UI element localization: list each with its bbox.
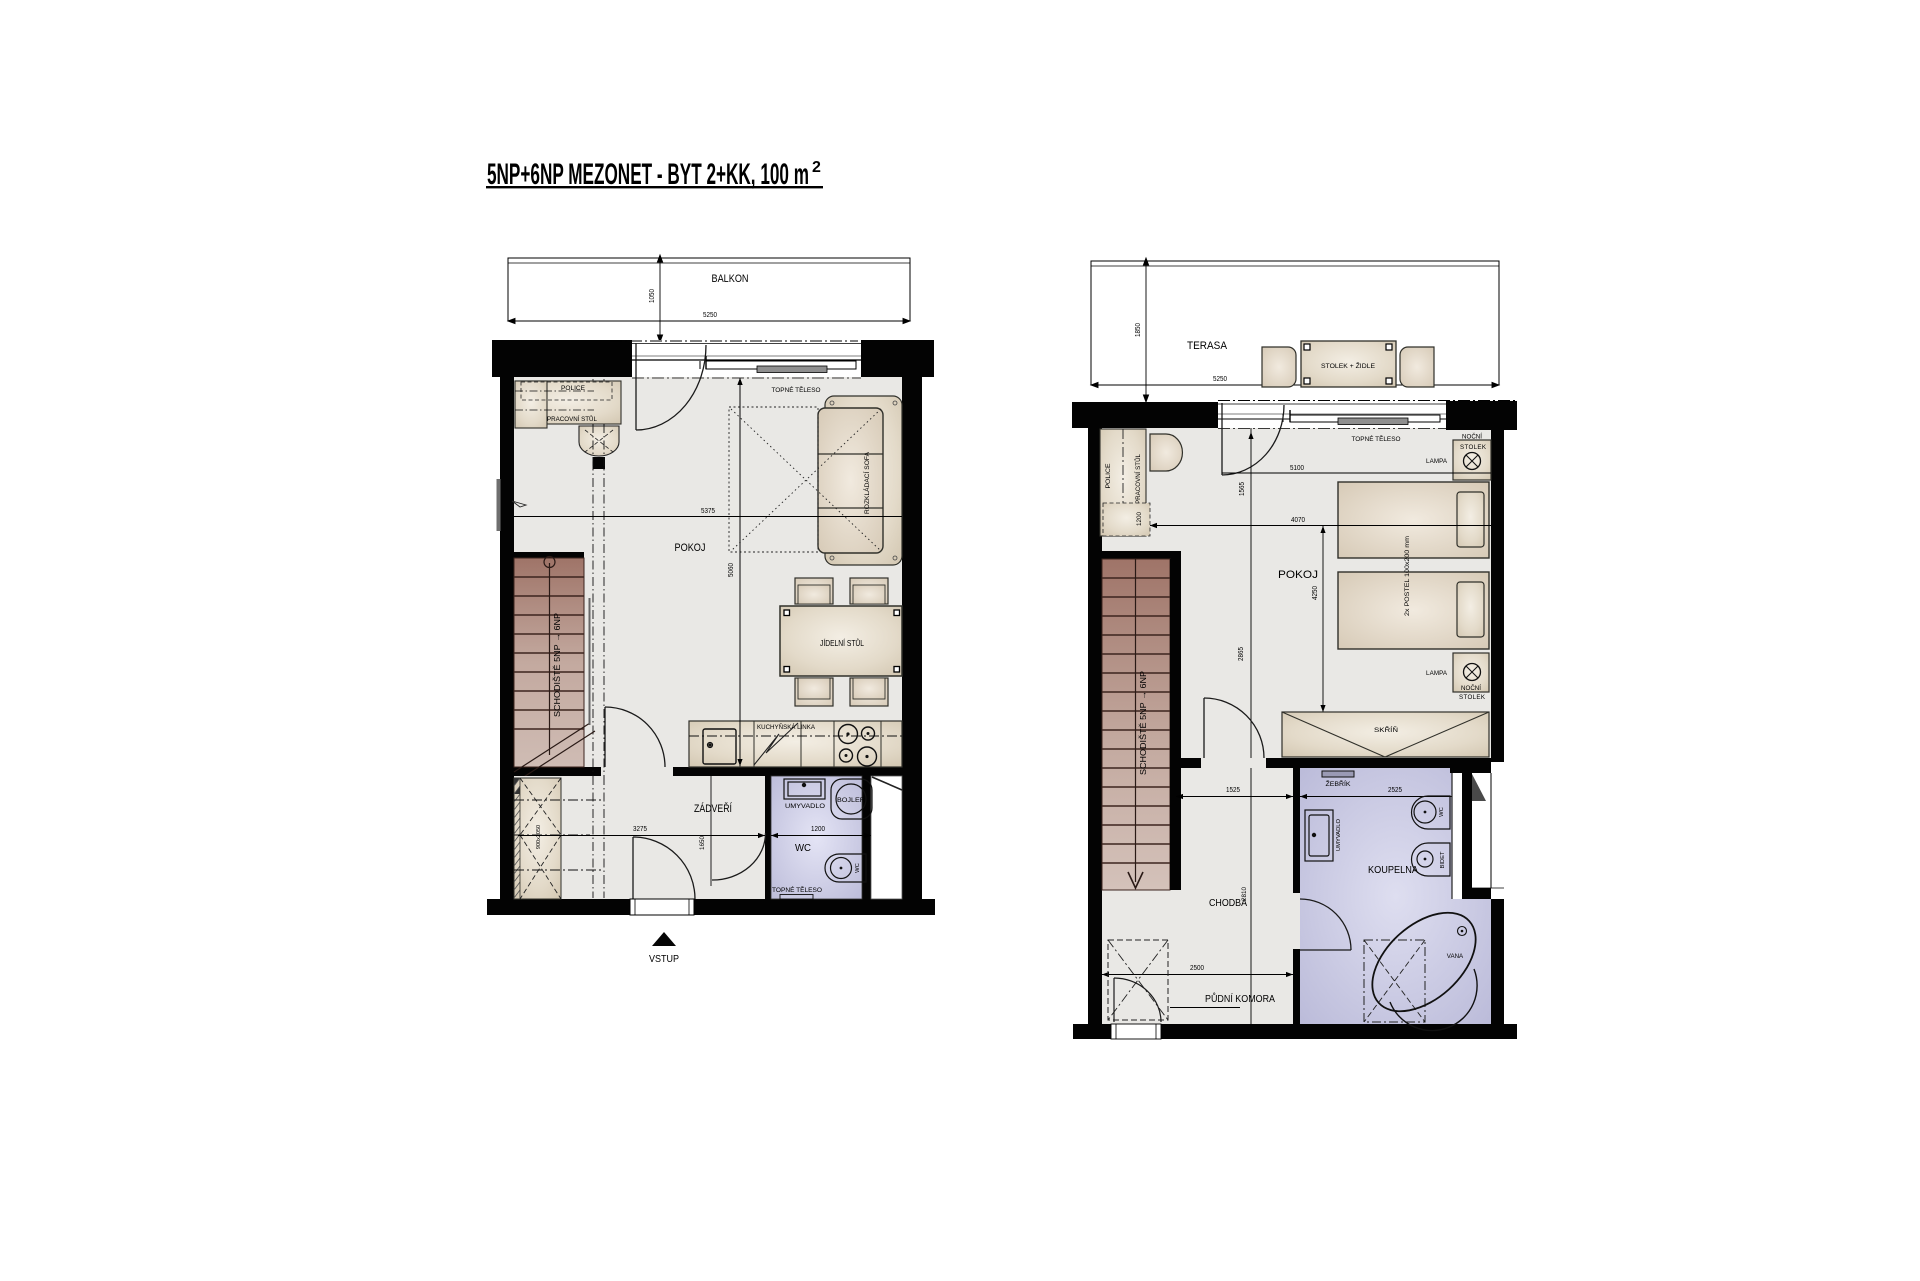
svg-text:900x2050: 900x2050 [536,825,542,849]
svg-text:5060: 5060 [726,563,735,577]
svg-text:VANA: VANA [1447,953,1464,960]
svg-text:5100: 5100 [1290,463,1304,472]
svg-text:NOČNÍ: NOČNÍ [1462,434,1482,441]
svg-text:STOLEK + ŽIDLE: STOLEK + ŽIDLE [1321,361,1376,370]
svg-text:3275: 3275 [633,824,647,833]
svg-text:1050: 1050 [647,289,656,303]
svg-text:2810: 2810 [1241,887,1248,901]
svg-text:BIDET: BIDET [1440,851,1446,869]
svg-text:UMYVADLO: UMYVADLO [785,803,825,810]
svg-text:ROZKLÁDACÍ SOFA: ROZKLÁDACÍ SOFA [862,452,871,514]
svg-text:5250: 5250 [703,310,717,319]
svg-text:1525: 1525 [1226,785,1240,794]
svg-text:1850: 1850 [1133,323,1142,337]
svg-text:WC: WC [1439,807,1445,817]
svg-text:SCHODIŠTĚ 5NP → 6NP: SCHODIŠTĚ 5NP → 6NP [1138,671,1148,775]
svg-text:PRACOVNÍ STŮL: PRACOVNÍ STŮL [1135,453,1142,504]
svg-text:WC: WC [855,863,861,873]
svg-text:2525: 2525 [1388,785,1402,794]
svg-text:LAMPA: LAMPA [1426,670,1448,677]
svg-text:KOUPELNA: KOUPELNA [1368,864,1418,876]
svg-text:TOPNÉ TĚLESO: TOPNÉ TĚLESO [1352,434,1401,443]
svg-text:VSTUP: VSTUP [649,953,679,965]
svg-text:POLICE: POLICE [561,386,585,392]
svg-text:POKOJ: POKOJ [675,542,706,554]
svg-text:UMYVADLO: UMYVADLO [1336,818,1342,851]
svg-text:STOLEK: STOLEK [1460,444,1487,451]
svg-text:TOPNÉ TĚLESO: TOPNÉ TĚLESO [772,885,822,894]
svg-text:WC: WC [795,842,811,854]
svg-text:1200: 1200 [811,824,825,833]
svg-text:ZÁDVEŘÍ: ZÁDVEŘÍ [694,802,733,815]
svg-text:TOPNÉ TĚLESO: TOPNÉ TĚLESO [772,385,821,394]
svg-text:PŮDNÍ KOMORA: PŮDNÍ KOMORA [1205,992,1275,1005]
svg-text:TERASA: TERASA [1187,340,1228,352]
svg-text:POKOJ: POKOJ [1278,569,1318,581]
svg-text:STOLEK: STOLEK [1459,694,1486,701]
svg-text:2500: 2500 [1190,963,1204,972]
svg-text:PRACOVNÍ STŮL: PRACOVNÍ STŮL [547,416,598,423]
svg-text:SKŘÍŇ: SKŘÍŇ [1374,725,1398,734]
svg-text:1650: 1650 [699,836,706,850]
svg-text:1565: 1565 [1237,482,1246,496]
svg-text:BOJLER: BOJLER [837,797,866,804]
svg-text:5375: 5375 [701,506,715,515]
svg-text:SCHODIŠTĚ 5NP → 6NP: SCHODIŠTĚ 5NP → 6NP [552,613,562,717]
svg-text:KUCHYŇSKÁ LINKA: KUCHYŇSKÁ LINKA [757,722,815,731]
svg-text:1200: 1200 [1136,511,1143,526]
svg-text:2: 2 [812,159,821,176]
svg-text:ŽEBŘÍK: ŽEBŘÍK [1326,779,1352,788]
svg-text:4250: 4250 [1310,586,1319,600]
svg-text:2x POSTEL 100x200 mm: 2x POSTEL 100x200 mm [1404,535,1411,616]
svg-text:5250: 5250 [1213,374,1227,383]
svg-text:4070: 4070 [1291,515,1305,524]
svg-text:POLICE: POLICE [1106,464,1112,489]
svg-text:LAMPA: LAMPA [1426,458,1448,465]
svg-text:BALKON: BALKON [712,273,749,285]
svg-text:NOČNÍ: NOČNÍ [1461,685,1481,692]
svg-text:JÍDELNÍ STŮL: JÍDELNÍ STŮL [820,639,864,648]
svg-text:2865: 2865 [1236,647,1245,661]
